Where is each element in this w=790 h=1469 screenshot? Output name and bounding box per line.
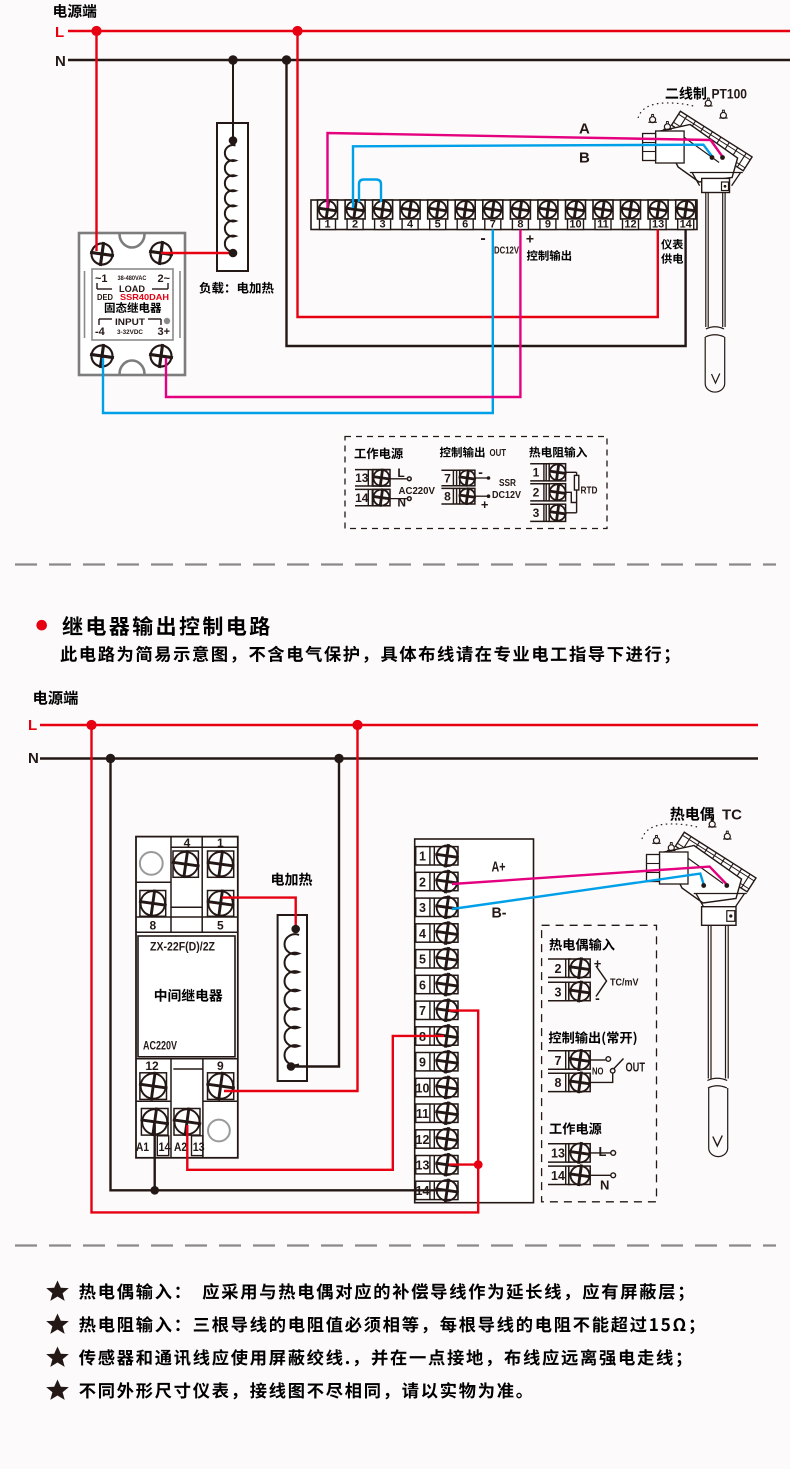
svg-text:DC12V: DC12V <box>492 489 521 501</box>
svg-text:3: 3 <box>533 506 540 520</box>
svg-text:9: 9 <box>419 1056 426 1070</box>
svg-text:6: 6 <box>462 219 468 231</box>
svg-text:12: 12 <box>416 1133 430 1147</box>
svg-text:L: L <box>28 717 37 734</box>
svg-text:TC: TC <box>722 807 742 824</box>
svg-text:8: 8 <box>149 919 156 933</box>
svg-text:N: N <box>28 750 39 767</box>
svg-text:8: 8 <box>517 219 523 231</box>
svg-text:11: 11 <box>597 219 609 231</box>
svg-text:13: 13 <box>652 219 664 231</box>
svg-text:7: 7 <box>555 1054 562 1068</box>
svg-text:B: B <box>579 150 590 167</box>
svg-text:1: 1 <box>324 219 330 231</box>
svg-text:4: 4 <box>184 836 191 850</box>
svg-text:3: 3 <box>380 219 386 231</box>
svg-text:10: 10 <box>569 219 581 231</box>
svg-text:TC/mV: TC/mV <box>610 977 639 989</box>
svg-text:13: 13 <box>551 1147 565 1161</box>
svg-text:3+: 3+ <box>157 326 170 338</box>
svg-text:+: + <box>481 497 489 512</box>
svg-text:12: 12 <box>624 219 636 231</box>
svg-text:OUT: OUT <box>626 1060 646 1075</box>
svg-text:5: 5 <box>217 919 224 933</box>
svg-text:1: 1 <box>217 836 224 850</box>
svg-text:12: 12 <box>145 1059 159 1073</box>
svg-text:14: 14 <box>551 1169 565 1183</box>
svg-text:OUT: OUT <box>490 447 507 459</box>
svg-text:8: 8 <box>555 1076 562 1090</box>
svg-text:B-: B- <box>492 906 507 922</box>
svg-text:NO: NO <box>592 1066 604 1078</box>
svg-text:N: N <box>55 53 66 70</box>
svg-text:-: - <box>480 230 485 247</box>
svg-text:A1: A1 <box>136 1142 150 1154</box>
svg-text:N: N <box>600 1178 609 1193</box>
svg-text:SSR40DAH: SSR40DAH <box>120 292 169 302</box>
svg-text:8: 8 <box>444 490 451 504</box>
svg-text:14: 14 <box>159 1142 172 1154</box>
svg-text:3: 3 <box>419 901 426 915</box>
svg-text:PT100: PT100 <box>712 86 748 102</box>
svg-text:L: L <box>397 466 404 480</box>
svg-text:6: 6 <box>419 978 426 992</box>
svg-text:2: 2 <box>352 219 358 231</box>
svg-text:DC12V: DC12V <box>494 245 519 256</box>
svg-text:13: 13 <box>355 471 369 485</box>
svg-text:4: 4 <box>407 219 414 231</box>
svg-text:A: A <box>579 121 590 138</box>
svg-text:5: 5 <box>435 219 441 231</box>
svg-text:2: 2 <box>533 486 540 500</box>
svg-text:-4: -4 <box>95 326 106 338</box>
svg-text:9: 9 <box>217 1059 224 1073</box>
svg-text:13: 13 <box>416 1159 430 1173</box>
svg-text:N: N <box>397 496 406 510</box>
svg-text:RTD: RTD <box>581 485 598 497</box>
svg-text:3: 3 <box>555 985 562 999</box>
svg-text:5: 5 <box>419 953 426 967</box>
svg-text:INPUT: INPUT <box>115 317 146 327</box>
svg-text:SSR: SSR <box>499 478 517 489</box>
svg-text:14: 14 <box>355 491 369 505</box>
svg-text:14: 14 <box>680 219 693 231</box>
svg-text:1: 1 <box>419 850 426 864</box>
svg-text:9: 9 <box>545 219 551 231</box>
svg-text:11: 11 <box>416 1107 429 1121</box>
svg-text:7: 7 <box>490 219 496 231</box>
svg-text:2: 2 <box>419 875 426 889</box>
svg-text:+: + <box>526 231 534 247</box>
svg-text:7: 7 <box>419 1004 426 1018</box>
svg-text:3-32VDC: 3-32VDC <box>117 329 143 336</box>
svg-text:13: 13 <box>193 1142 205 1154</box>
svg-text:10: 10 <box>416 1081 430 1095</box>
svg-text:L: L <box>55 24 64 41</box>
svg-text:DED: DED <box>97 292 113 302</box>
svg-text:38-480VAC: 38-480VAC <box>118 275 147 282</box>
svg-text:7: 7 <box>444 471 451 485</box>
svg-text:A+: A+ <box>492 860 506 876</box>
svg-text:ZX-22F(D)/2Z: ZX-22F(D)/2Z <box>150 942 215 954</box>
svg-text:1: 1 <box>533 466 540 480</box>
svg-text:2: 2 <box>555 962 562 976</box>
svg-text:AC220V: AC220V <box>143 1039 177 1053</box>
svg-text:L: L <box>599 1144 607 1159</box>
svg-text:A2: A2 <box>174 1142 187 1154</box>
svg-text:4: 4 <box>419 927 426 941</box>
